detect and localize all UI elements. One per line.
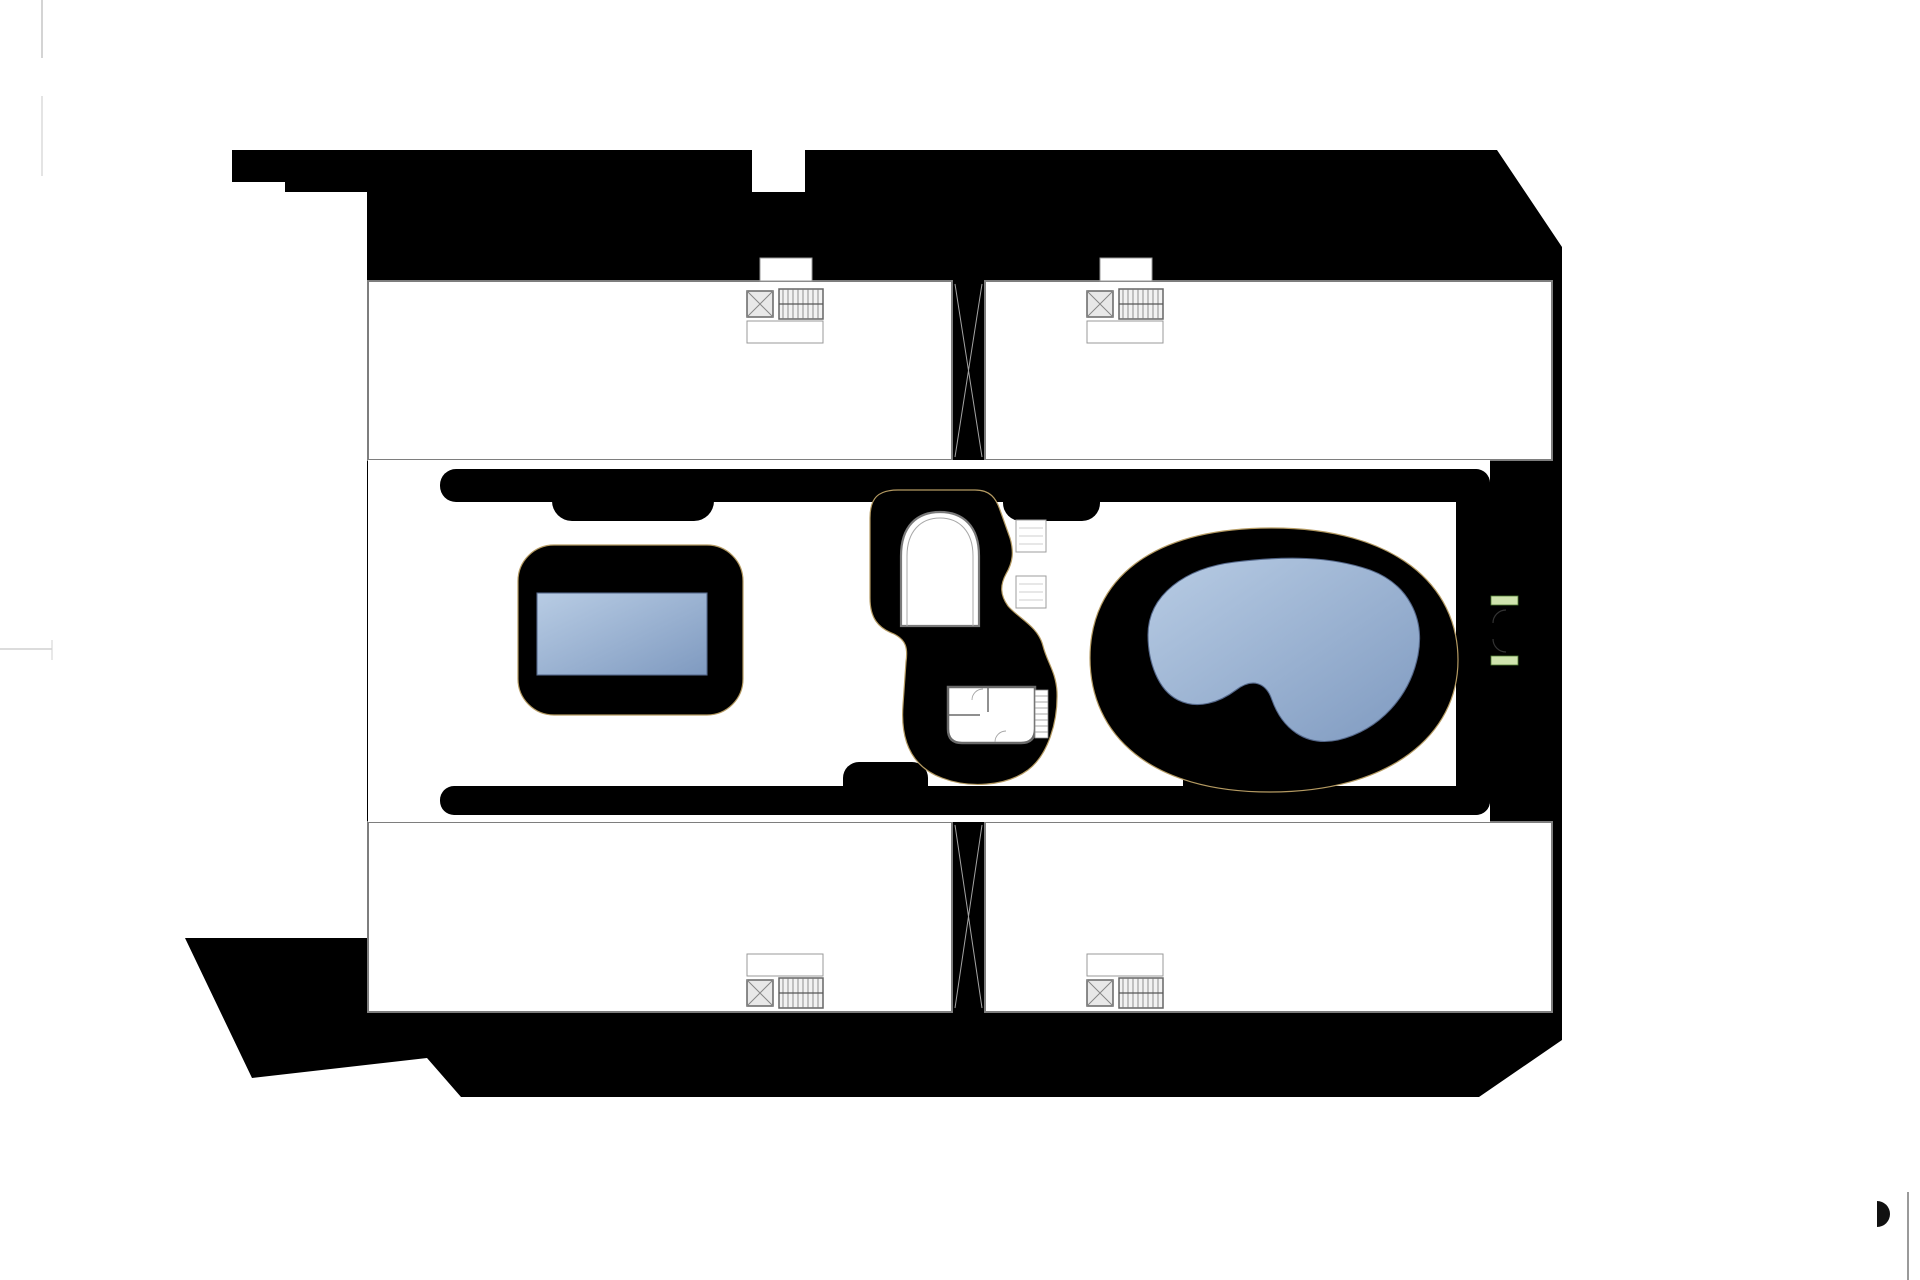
page-frame-marks	[0, 0, 52, 660]
site-plan-drawing	[0, 0, 1920, 1280]
arched-court	[901, 512, 979, 626]
block-b-outline	[985, 822, 1552, 1012]
stair-core-c	[1087, 289, 1163, 343]
patio-table	[1016, 520, 1046, 552]
stair-core-d	[747, 289, 823, 343]
hedge	[1491, 596, 1518, 605]
paving-notch	[752, 150, 805, 192]
hedge	[1491, 656, 1518, 665]
site-plan-page	[0, 0, 1920, 1280]
block-c-outline	[985, 281, 1552, 460]
block-a-outline	[368, 822, 952, 1012]
left-pool	[537, 593, 707, 675]
entry-stub-c	[1100, 258, 1152, 281]
north-marker	[1877, 1201, 1890, 1227]
patio-table	[1016, 576, 1046, 608]
stair-core-a	[747, 954, 823, 1008]
block-d-outline	[368, 281, 952, 460]
stair-core-b	[1087, 954, 1163, 1008]
side-entrance	[1490, 596, 1562, 665]
entry-stub-d	[760, 258, 812, 281]
